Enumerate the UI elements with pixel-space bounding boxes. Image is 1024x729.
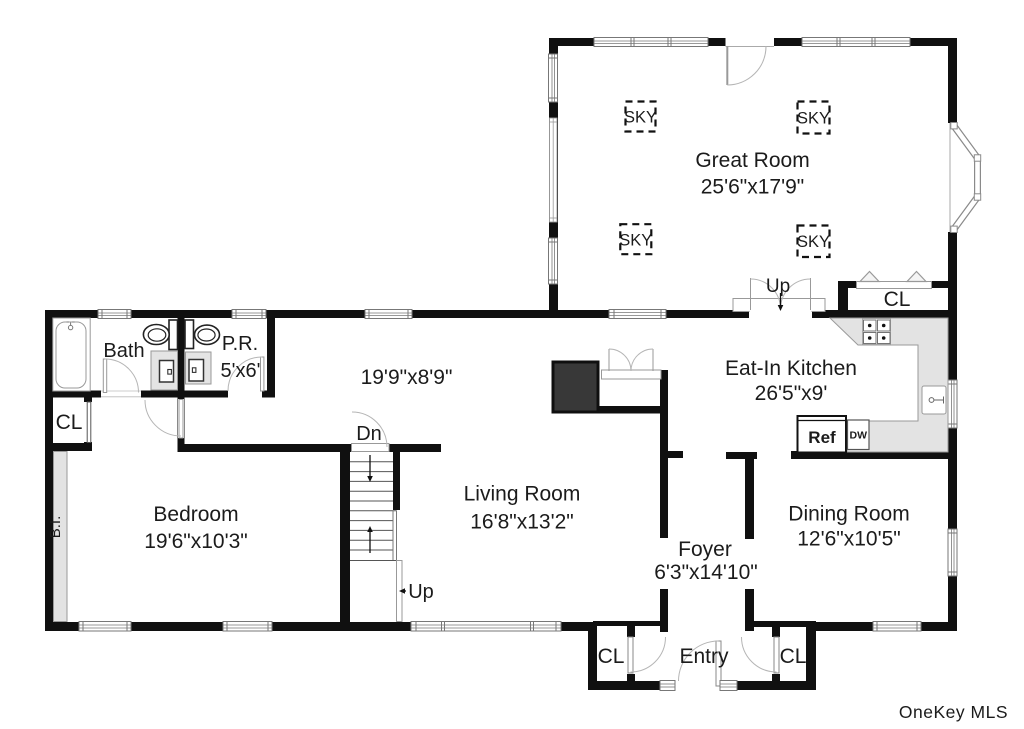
svg-text:SKY: SKY [619, 232, 652, 250]
svg-text:B.I.: B.I. [47, 516, 64, 539]
svg-text:CL: CL [884, 288, 911, 311]
svg-text:6'3"x14'10": 6'3"x14'10" [654, 561, 758, 584]
svg-text:5'x6': 5'x6' [221, 360, 261, 382]
svg-text:19'9"x8'9": 19'9"x8'9" [361, 366, 453, 389]
svg-text:Bedroom: Bedroom [153, 503, 238, 526]
svg-text:DW: DW [850, 430, 868, 442]
svg-text:19'6"x10'3": 19'6"x10'3" [144, 530, 248, 553]
svg-text:P.R.: P.R. [222, 333, 258, 355]
svg-text:Eat-In Kitchen: Eat-In Kitchen [725, 357, 857, 380]
svg-text:Bath: Bath [103, 340, 144, 362]
svg-text:CL: CL [598, 645, 625, 668]
svg-text:SKY: SKY [797, 110, 830, 128]
svg-text:SKY: SKY [624, 109, 657, 127]
svg-text:Ref: Ref [808, 428, 836, 447]
svg-text:Dining Room: Dining Room [788, 503, 909, 526]
svg-text:25'6"x17'9": 25'6"x17'9" [701, 176, 805, 199]
svg-text:Dn: Dn [356, 423, 382, 445]
svg-text:Up: Up [766, 276, 790, 297]
svg-text:OneKey MLS: OneKey MLS [899, 702, 1008, 722]
svg-text:Entry: Entry [679, 645, 729, 668]
svg-text:12'6"x10'5": 12'6"x10'5" [797, 528, 901, 551]
svg-text:Living Room: Living Room [464, 483, 581, 506]
svg-text:Great Room: Great Room [695, 149, 809, 172]
svg-text:16'8"x13'2": 16'8"x13'2" [470, 511, 574, 534]
svg-text:SKY: SKY [797, 233, 830, 251]
svg-text:Foyer: Foyer [678, 538, 732, 561]
svg-text:Up: Up [408, 581, 434, 603]
svg-text:CL: CL [56, 411, 83, 434]
svg-text:CL: CL [780, 645, 807, 668]
svg-text:26'5"x9': 26'5"x9' [755, 382, 828, 405]
